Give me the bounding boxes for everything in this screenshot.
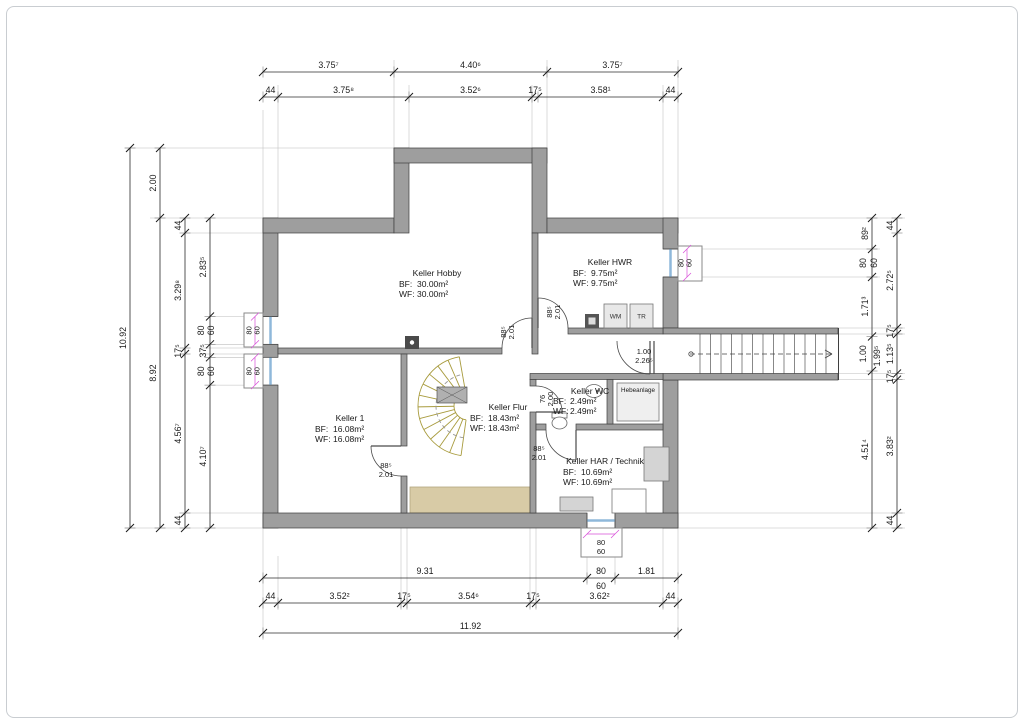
room-wf-flur: 18.43m²: [488, 423, 519, 433]
room-name-hobby: Keller Hobby: [413, 268, 462, 278]
dim-label: 3.75⁷: [602, 60, 622, 70]
door-size-hwr-height: 2.01: [553, 305, 562, 320]
room-wf-label-keller1: WF:: [315, 434, 331, 444]
dim-label: 4.40⁶: [460, 60, 481, 70]
dim-label: 11.92: [460, 621, 481, 631]
dim-label: 3.83²: [885, 436, 895, 456]
dim-label: 17⁵: [528, 85, 542, 95]
room-wf-label-hwr: WF:: [573, 278, 589, 288]
dim-label: 8.92: [148, 364, 158, 381]
window-size-bottom-sill: 60: [597, 547, 605, 556]
door-size-wc-height: 2.00: [546, 392, 555, 407]
room-bf-label-hwr: BF:: [573, 268, 586, 278]
room-bf-har: 10.69m²: [581, 467, 612, 477]
room-bf-hobby: 30.00m²: [417, 279, 448, 289]
room-name-flur: Keller Flur: [489, 402, 528, 412]
dim-label: 3.29⁸: [173, 280, 183, 301]
room-wf-har: 10.69m²: [581, 477, 612, 487]
exterior-stair-treads: [689, 334, 832, 374]
dim-label: 3.58¹: [590, 85, 610, 95]
dim-label: 80: [196, 366, 206, 376]
dim-label: 9.31: [416, 566, 433, 576]
room-bf-flur: 18.43m²: [488, 413, 519, 423]
window-left-upper: [263, 317, 278, 345]
dim-label: 1.13⁵: [885, 343, 895, 364]
room-bf-label-hobby: BF:: [399, 279, 412, 289]
room-wf-label-har: WF:: [563, 477, 579, 487]
floorplan-page: WM TR Keller Hobby BF:: [0, 0, 1024, 724]
dim-label: 3.54⁶: [458, 591, 479, 601]
window-bottom: [587, 513, 615, 528]
door-size-exit-width: 1.00: [637, 347, 652, 356]
room-bf-label-har: BF:: [563, 467, 576, 477]
room-name-keller1: Keller 1: [336, 413, 365, 423]
dim-label: 17⁵: [173, 344, 183, 358]
dim-label: 60: [206, 325, 216, 335]
dim-label: 1.99⁵: [872, 345, 882, 366]
room-name-har: Keller HAR / Technik: [566, 456, 645, 466]
dim-label: 44: [266, 591, 276, 601]
dim-label: 17⁵: [397, 591, 411, 601]
window-size-left-lower-sill: 60: [253, 367, 262, 375]
door-size-har-height: 2.01: [532, 453, 547, 462]
window-size-right-sill: 60: [685, 259, 694, 267]
dim-label: 3.52⁶: [460, 85, 481, 95]
dim-label: 3.52²: [329, 591, 349, 601]
chimney: [405, 336, 419, 349]
window-size-bottom-width: 80: [597, 538, 605, 547]
extension-lines: [125, 60, 905, 640]
washing-machine-label: WM: [610, 314, 622, 321]
stairwell-hatch: [437, 387, 467, 403]
room-wf-label-wc: WF:: [553, 406, 569, 416]
dim-label: 60: [596, 581, 606, 591]
dim-label: 89²: [860, 227, 870, 240]
dim-label: 80: [196, 325, 206, 335]
dim-label: 17⁵: [526, 591, 540, 601]
washing-machine: WM: [604, 304, 627, 328]
room-wf-hwr: 9.75m²: [591, 278, 618, 288]
dim-label: 44: [666, 85, 676, 95]
window-left-lower: [263, 357, 278, 385]
room-bf-keller1: 16.08m²: [333, 424, 364, 434]
room-wf-label-hobby: WF:: [399, 289, 415, 299]
room-wf-hobby: 30.00m²: [417, 289, 448, 299]
floorplan-drawing: WM TR Keller Hobby BF:: [0, 0, 1024, 724]
room-wf-label-flur: WF:: [470, 423, 486, 433]
dim-label: 44: [666, 591, 676, 601]
room-bf-wc: 2.49m²: [570, 396, 597, 406]
door-size-hobby-height: 2.01: [507, 325, 516, 340]
dim-label: 44: [266, 85, 276, 95]
dim-label: 1.00: [858, 345, 868, 362]
door-size-keller1-width: 88⁵: [380, 461, 391, 470]
room-bf-label-flur: BF:: [470, 413, 483, 423]
dim-label: 4.10⁷: [198, 446, 208, 466]
dryer-label: TR: [637, 314, 646, 321]
dim-label: 1.71³: [860, 297, 870, 317]
dim-label: 3.75⁸: [333, 85, 354, 95]
door-size-keller1-height: 2.01: [379, 470, 394, 479]
dim-label: 44: [173, 516, 183, 526]
room-name-wc: Keller WC: [571, 386, 609, 396]
door-size-exit-height: 2.26⁵: [635, 356, 653, 365]
dim-label: 2.83⁵: [198, 256, 208, 277]
room-bf-label-keller1: BF:: [315, 424, 328, 434]
dim-label: 2.00: [148, 174, 158, 191]
dim-label: 80: [858, 258, 868, 268]
dim-label: 60: [206, 366, 216, 376]
dim-label: 60: [869, 258, 879, 268]
window-size-left-upper-sill: 60: [253, 326, 262, 334]
dim-label: 17⁵: [885, 369, 895, 383]
room-name-hwr: Keller HWR: [588, 257, 632, 267]
dim-label: 80: [596, 566, 606, 576]
stair-landing-ramp: [410, 487, 530, 513]
room-wf-wc: 2.49m²: [570, 406, 597, 416]
dim-label: 3.62²: [589, 591, 609, 601]
dim-label: 3.75⁷: [318, 60, 338, 70]
door-size-har-width: 88⁵: [533, 444, 544, 453]
dim-label: 1.81: [638, 566, 655, 576]
dim-label: 4.51⁴: [860, 439, 870, 460]
dim-label: 37⁵: [198, 344, 208, 358]
dim-label: 2.72⁵: [885, 270, 895, 291]
room-wf-keller1: 16.08m²: [333, 434, 364, 444]
dim-label: 4.56⁷: [173, 423, 183, 443]
dim-label: 17⁵: [885, 324, 895, 338]
dim-label: 44: [885, 221, 895, 231]
dim-label: 44: [885, 516, 895, 526]
floor-drain: [585, 314, 599, 328]
dim-label: 10.92: [118, 327, 128, 349]
winder-stair-treads: [418, 357, 466, 456]
dim-label: 44: [173, 221, 183, 231]
room-name-hebeanlage: Hebeanlage: [621, 387, 655, 394]
dryer: TR: [630, 304, 653, 328]
room-bf-hwr: 9.75m²: [591, 268, 618, 278]
